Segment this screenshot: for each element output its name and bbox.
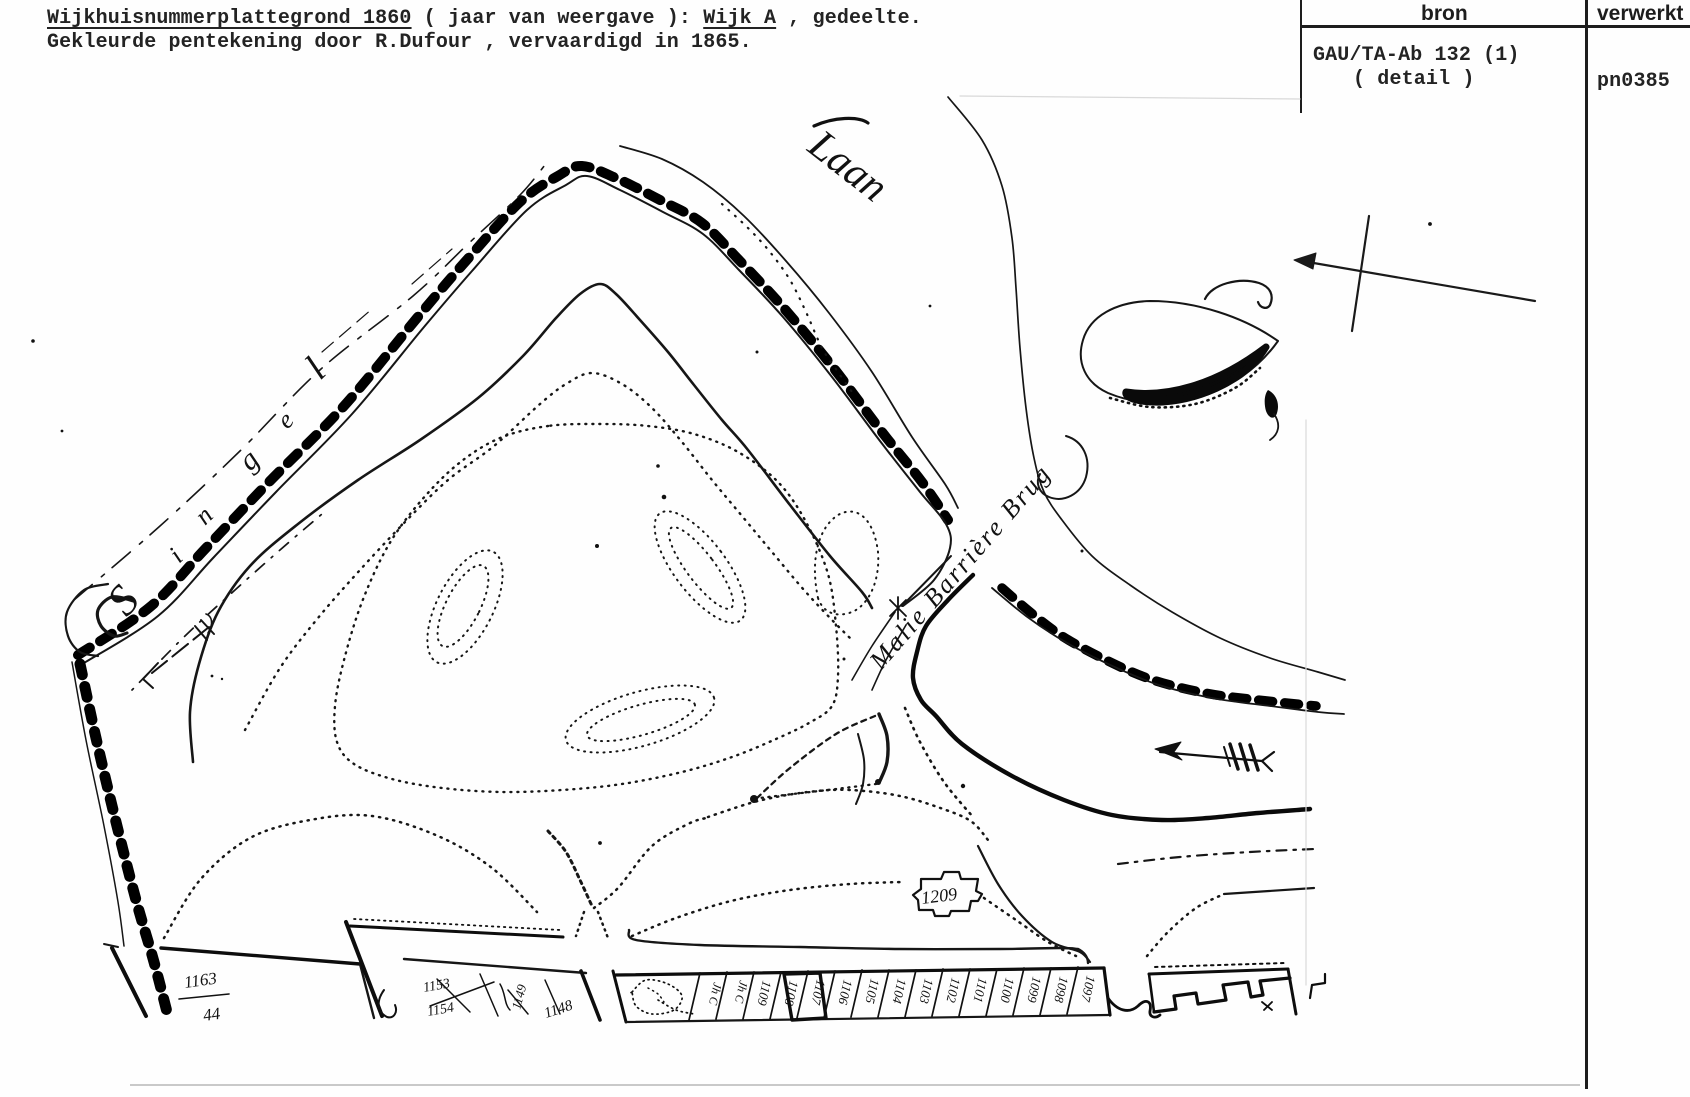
svg-text:1209: 1209 [920, 884, 958, 908]
svg-text:1102: 1102 [943, 976, 963, 1004]
svg-text:Laan: Laan [799, 121, 896, 211]
svg-text:44: 44 [202, 1004, 222, 1025]
svg-text:1099: 1099 [1024, 975, 1045, 1004]
svg-text:1103: 1103 [916, 977, 936, 1005]
svg-text:1104: 1104 [889, 977, 909, 1005]
svg-text:1100: 1100 [997, 976, 1017, 1004]
svg-text:1149: 1149 [508, 982, 529, 1011]
svg-text:1163: 1163 [183, 969, 218, 992]
svg-text:1109: 1109 [754, 979, 774, 1007]
svg-text:g: g [232, 443, 266, 477]
svg-text:Malie Barrière Brug: Malie Barrière Brug [863, 458, 1057, 675]
svg-text:l: l [297, 350, 334, 388]
svg-text:1098: 1098 [1051, 975, 1072, 1004]
svg-text:n: n [189, 500, 218, 530]
svg-text:i: i [163, 542, 188, 568]
svg-text:1105: 1105 [862, 977, 882, 1005]
svg-text:S: S [97, 576, 149, 624]
svg-text:Jh C: Jh C [706, 981, 725, 1007]
svg-text:1154: 1154 [426, 1000, 455, 1019]
svg-text:1101: 1101 [970, 976, 990, 1004]
svg-text:1106: 1106 [835, 978, 855, 1006]
svg-text:1097: 1097 [1078, 974, 1099, 1003]
svg-text:e: e [271, 405, 299, 434]
svg-text:1107: 1107 [808, 978, 828, 1006]
